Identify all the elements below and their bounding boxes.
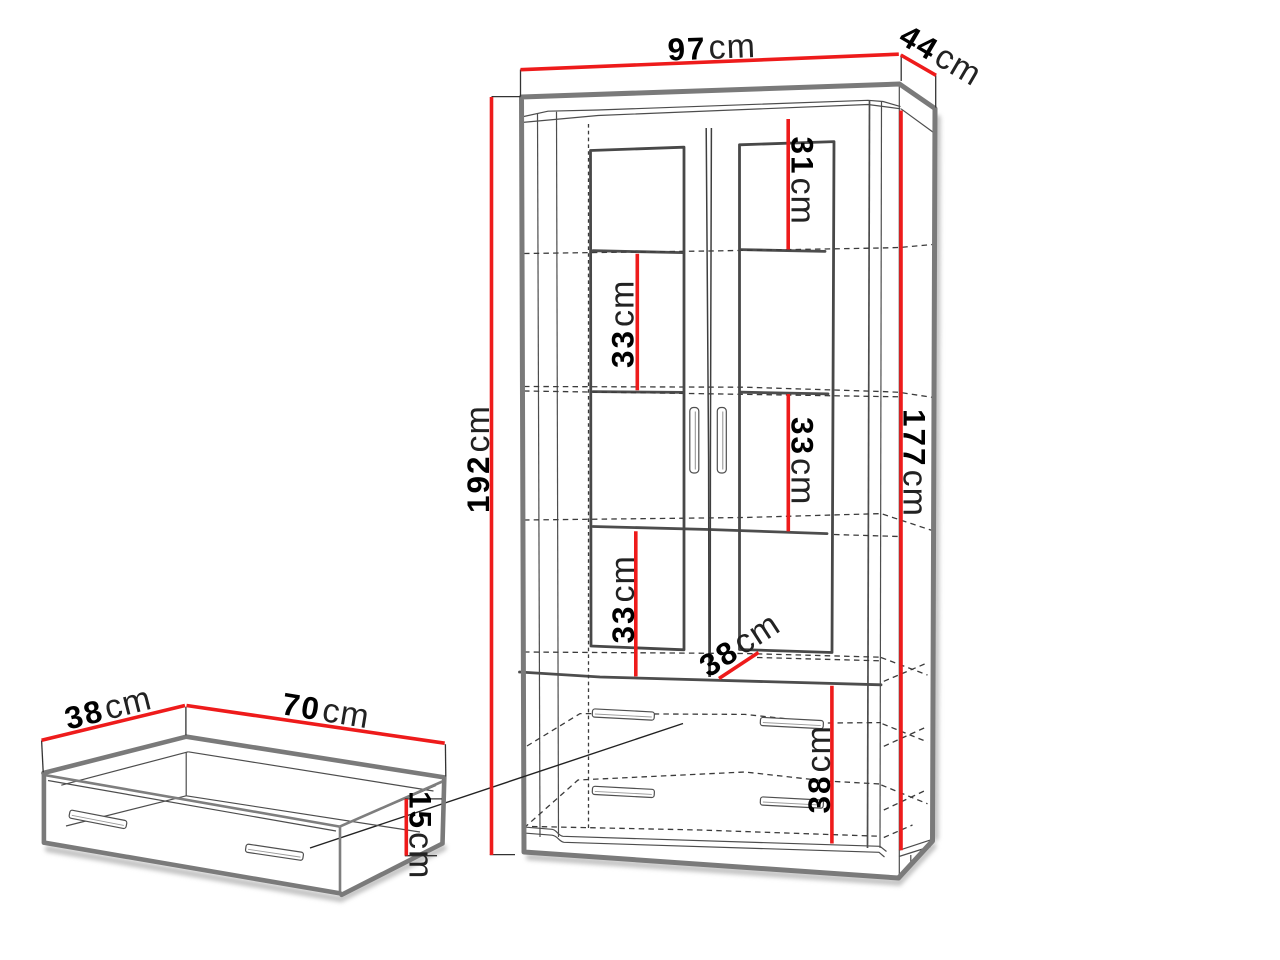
svg-text:177cm: 177cm [896, 409, 934, 517]
svg-text:38cm: 38cm [800, 725, 838, 813]
svg-text:31cm: 31cm [784, 137, 822, 225]
svg-text:33cm: 33cm [784, 417, 822, 505]
svg-text:33cm: 33cm [604, 280, 642, 368]
svg-text:33cm: 33cm [604, 555, 642, 643]
svg-text:97cm: 97cm [667, 27, 757, 69]
svg-text:15cm: 15cm [402, 791, 440, 879]
svg-text:192cm: 192cm [459, 405, 497, 513]
